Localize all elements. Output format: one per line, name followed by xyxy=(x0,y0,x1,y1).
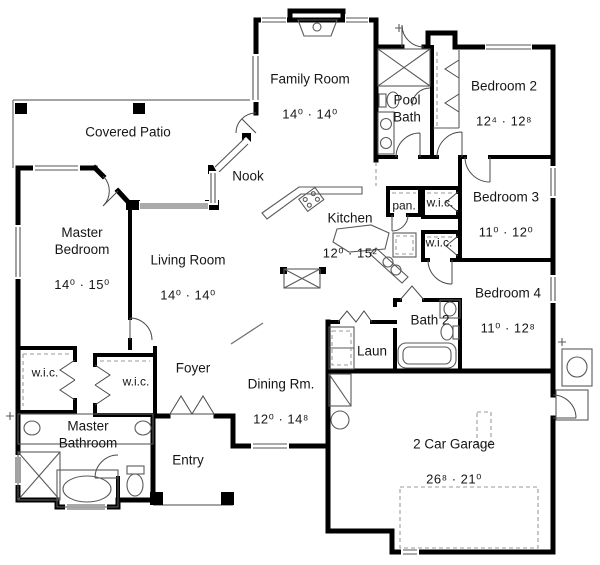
room-label-foyer: Foyer xyxy=(176,344,211,395)
room-label-bedroom2: Bedroom 2 12⁴ · 12⁸ xyxy=(471,62,537,147)
room-label-master-bedroom: Master Bedroom 14⁰ · 15⁰ xyxy=(54,208,109,310)
washer-dryer-fixture xyxy=(329,327,354,369)
room-label-bedroom4: Bedroom 4 11⁰ · 12⁸ xyxy=(475,269,541,354)
room-label-pool-bath: Pool Bath xyxy=(393,75,421,143)
room-label-wic-bedroom4: w.i.c. xyxy=(426,221,453,266)
room-label-wic-master-1: w.i.c. xyxy=(32,351,59,396)
room-label-bedroom3: Bedroom 3 11⁰ · 12⁰ xyxy=(473,173,539,258)
entry-column xyxy=(221,492,234,505)
room-label-wic-master-2: w.i.c. xyxy=(123,360,150,405)
room-label-garage: 2 Car Garage 26⁸ · 21⁰ xyxy=(413,420,495,505)
room-label-master-bathroom: Master Bathroom xyxy=(59,401,118,469)
front-double-door xyxy=(170,396,214,414)
room-label-kitchen: Kitchen 12⁰ · 15² xyxy=(323,194,378,279)
room-label-entry: Entry xyxy=(172,436,204,487)
stove-fixture xyxy=(299,187,324,211)
master-toilet-fixture xyxy=(127,466,144,496)
room-label-family-room: Family Room 14⁰ · 14⁰ xyxy=(270,55,350,140)
laundry-bifold-door xyxy=(338,311,372,322)
room-label-bath2: Bath 2 xyxy=(410,296,449,347)
room-label-dining-room: Dining Rm. 12⁰ · 14⁸ xyxy=(248,360,315,445)
floor-plan: Family Room 14⁰ · 14⁰ Pool Bath Bedroom … xyxy=(0,0,600,565)
water-heater-fixture xyxy=(329,374,351,429)
room-label-laundry: Laun xyxy=(357,327,387,378)
pool-bath-sinks-fixture xyxy=(378,112,394,154)
room-label-covered-patio: Covered Patio xyxy=(85,108,171,159)
master-shower-fixture xyxy=(18,452,60,500)
room-label-wic-bedroom3: w.i.c. xyxy=(427,181,454,226)
patio-column xyxy=(15,103,27,114)
entry-column xyxy=(150,492,163,505)
room-label-nook: Nook xyxy=(232,152,264,203)
master-tub-fixture xyxy=(57,470,118,507)
room-label-pantry: pan. xyxy=(392,184,415,229)
art-niche xyxy=(284,269,320,288)
room-label-living-room: Living Room 14⁰ · 14⁰ xyxy=(150,236,225,321)
bath2-tub-fixture xyxy=(398,343,456,368)
